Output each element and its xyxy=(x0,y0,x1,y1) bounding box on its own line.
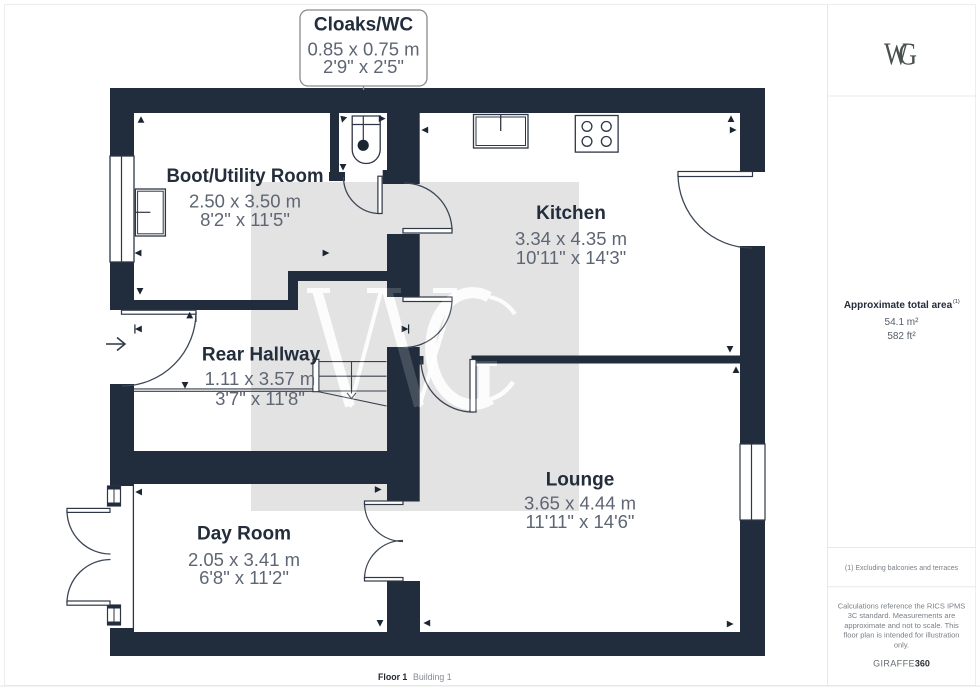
svg-text:approximate and not to scale.: approximate and not to scale. This xyxy=(844,621,959,630)
svg-text:6'8" x 11'2": 6'8" x 11'2" xyxy=(199,567,289,588)
svg-text:Boot/Utility Room: Boot/Utility Room xyxy=(167,166,324,187)
svg-text:Cloaks/WC: Cloaks/WC xyxy=(314,15,414,36)
svg-text:only.: only. xyxy=(894,640,909,649)
svg-text:11'11" x 14'6": 11'11" x 14'6" xyxy=(525,511,634,532)
svg-text:GIRAFFE360: GIRAFFE360 xyxy=(873,659,930,669)
svg-text:Approximate total area: Approximate total area xyxy=(844,300,953,311)
svg-text:Calculations reference the RIC: Calculations reference the RICS IPMS xyxy=(838,602,966,611)
svg-text:Lounge: Lounge xyxy=(546,470,615,491)
svg-text:3.34 x 4.35 m: 3.34 x 4.35 m xyxy=(515,228,627,249)
svg-text:10'11" x 14'3": 10'11" x 14'3" xyxy=(516,247,626,268)
svg-text:Day Room: Day Room xyxy=(197,524,291,545)
svg-text:Floor 1: Floor 1 xyxy=(378,672,407,682)
svg-text:54.1 m²: 54.1 m² xyxy=(885,317,920,328)
svg-text:1.11 x 3.57 m: 1.11 x 3.57 m xyxy=(205,368,316,389)
svg-text:(1): (1) xyxy=(953,299,960,305)
svg-text:G: G xyxy=(899,37,918,72)
svg-text:floor plan is intended for ill: floor plan is intended for illustration xyxy=(844,631,960,640)
svg-text:582 ft²: 582 ft² xyxy=(887,331,916,342)
svg-text:(1) Excluding balconies and te: (1) Excluding balconies and terraces xyxy=(845,565,959,572)
svg-text:3'7" x 11'8": 3'7" x 11'8" xyxy=(215,388,305,409)
svg-text:Rear Hallway: Rear Hallway xyxy=(202,345,321,366)
svg-text:2'9" x 2'5": 2'9" x 2'5" xyxy=(323,56,404,77)
svg-text:Kitchen: Kitchen xyxy=(536,203,606,224)
svg-text:8'2" x 11'5": 8'2" x 11'5" xyxy=(200,209,290,230)
svg-text:Building 1: Building 1 xyxy=(413,672,452,682)
svg-text:3C standard. Measurements are: 3C standard. Measurements are xyxy=(848,611,956,620)
